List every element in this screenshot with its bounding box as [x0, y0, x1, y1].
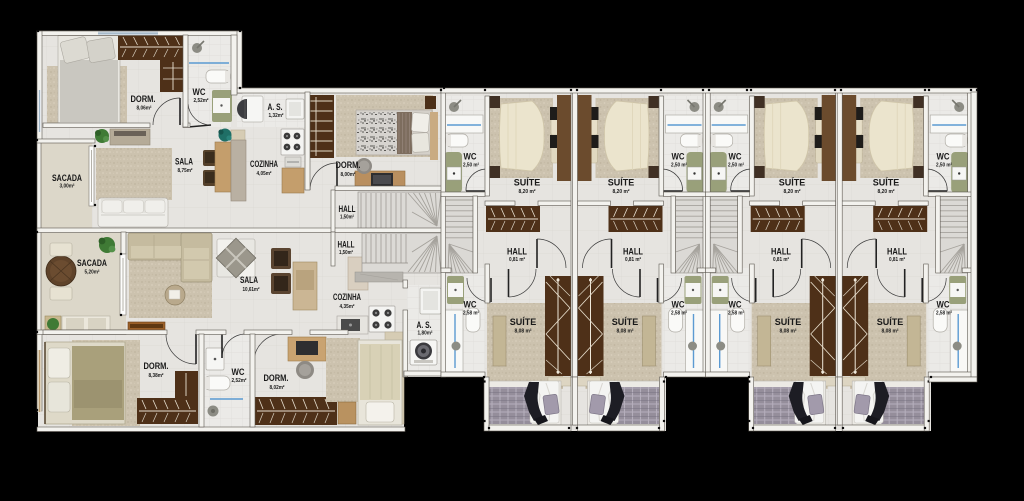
svg-text:WC: WC [672, 152, 685, 162]
svg-text:4,35m²: 4,35m² [340, 304, 355, 310]
svg-text:HALL: HALL [623, 247, 643, 257]
svg-text:8,08 m²: 8,08 m² [515, 329, 532, 335]
svg-text:SUÍTE: SUÍTE [608, 178, 635, 188]
svg-text:SUÍTE: SUÍTE [612, 317, 639, 327]
svg-text:5,20m²: 5,20m² [85, 270, 100, 276]
svg-text:SUÍTE: SUÍTE [877, 317, 904, 327]
svg-text:SUÍTE: SUÍTE [510, 317, 537, 327]
svg-text:HALL: HALL [338, 240, 355, 250]
svg-text:8,00m²: 8,00m² [341, 172, 356, 178]
svg-text:8,08 m²: 8,08 m² [780, 329, 797, 335]
svg-text:A. S.: A. S. [268, 102, 283, 112]
svg-text:1,50m²: 1,50m² [339, 250, 353, 256]
svg-text:HALL: HALL [771, 247, 791, 257]
svg-text:SUÍTE: SUÍTE [779, 178, 806, 188]
svg-text:WC: WC [729, 300, 742, 310]
svg-text:2,50 m²: 2,50 m² [936, 163, 952, 169]
svg-text:SACADA: SACADA [77, 258, 107, 268]
svg-text:8,08 m²: 8,08 m² [617, 329, 634, 335]
svg-text:2,50 m²: 2,50 m² [463, 163, 479, 169]
svg-text:WC: WC [464, 300, 477, 310]
svg-text:1,50m²: 1,50m² [340, 215, 354, 221]
svg-text:8,75m²: 8,75m² [178, 168, 193, 174]
svg-text:HALL: HALL [507, 247, 527, 257]
svg-text:0,81 m²: 0,81 m² [625, 257, 641, 263]
svg-text:8,20 m²: 8,20 m² [519, 189, 536, 195]
svg-text:2,50 m²: 2,50 m² [728, 163, 744, 169]
svg-text:8,38m²: 8,38m² [149, 373, 164, 379]
svg-text:WC: WC [232, 367, 245, 377]
svg-text:WC: WC [464, 152, 477, 162]
svg-text:DORM.: DORM. [336, 160, 361, 170]
svg-text:DORM.: DORM. [131, 94, 156, 104]
svg-text:SACADA: SACADA [52, 173, 82, 183]
svg-text:8,08 m²: 8,08 m² [882, 329, 899, 335]
svg-text:WC: WC [672, 300, 685, 310]
svg-text:DORM.: DORM. [144, 361, 169, 371]
svg-text:2,58 m²: 2,58 m² [728, 311, 744, 317]
svg-text:SALA: SALA [175, 157, 193, 167]
svg-text:10,61m²: 10,61m² [243, 287, 260, 293]
svg-text:2,50 m²: 2,50 m² [671, 163, 687, 169]
svg-text:DORM.: DORM. [264, 373, 289, 383]
svg-text:2,58 m²: 2,58 m² [463, 311, 479, 317]
svg-text:0,81 m²: 0,81 m² [773, 257, 789, 263]
svg-text:2,58 m²: 2,58 m² [671, 311, 687, 317]
svg-text:2,58 m²: 2,58 m² [936, 311, 952, 317]
svg-text:4,05m²: 4,05m² [257, 171, 272, 177]
svg-text:COZINHA: COZINHA [250, 159, 278, 169]
svg-text:WC: WC [937, 152, 950, 162]
svg-text:8,20 m²: 8,20 m² [878, 189, 895, 195]
svg-text:1,32m²: 1,32m² [269, 113, 284, 119]
svg-text:2,52m²: 2,52m² [232, 378, 247, 384]
svg-text:8,02m²: 8,02m² [270, 385, 285, 391]
svg-text:8,06m²: 8,06m² [137, 106, 152, 112]
svg-text:SUÍTE: SUÍTE [514, 178, 541, 188]
svg-text:HALL: HALL [339, 204, 356, 214]
svg-text:WC: WC [937, 300, 950, 310]
svg-text:8,20 m²: 8,20 m² [613, 189, 630, 195]
svg-text:0,81 m²: 0,81 m² [889, 257, 905, 263]
svg-text:1,80m²: 1,80m² [418, 331, 433, 337]
svg-text:WC: WC [193, 87, 206, 97]
svg-text:0,81 m²: 0,81 m² [509, 257, 525, 263]
svg-text:SUÍTE: SUÍTE [775, 317, 802, 327]
svg-text:HALL: HALL [887, 247, 907, 257]
svg-text:A. S.: A. S. [417, 320, 432, 330]
svg-text:SALA: SALA [240, 275, 258, 285]
svg-text:2,52m²: 2,52m² [194, 98, 209, 104]
svg-text:SUÍTE: SUÍTE [873, 178, 900, 188]
svg-text:3,00m²: 3,00m² [60, 184, 75, 190]
svg-text:COZINHA: COZINHA [333, 292, 361, 302]
svg-text:8,20 m²: 8,20 m² [784, 189, 801, 195]
svg-text:WC: WC [729, 152, 742, 162]
